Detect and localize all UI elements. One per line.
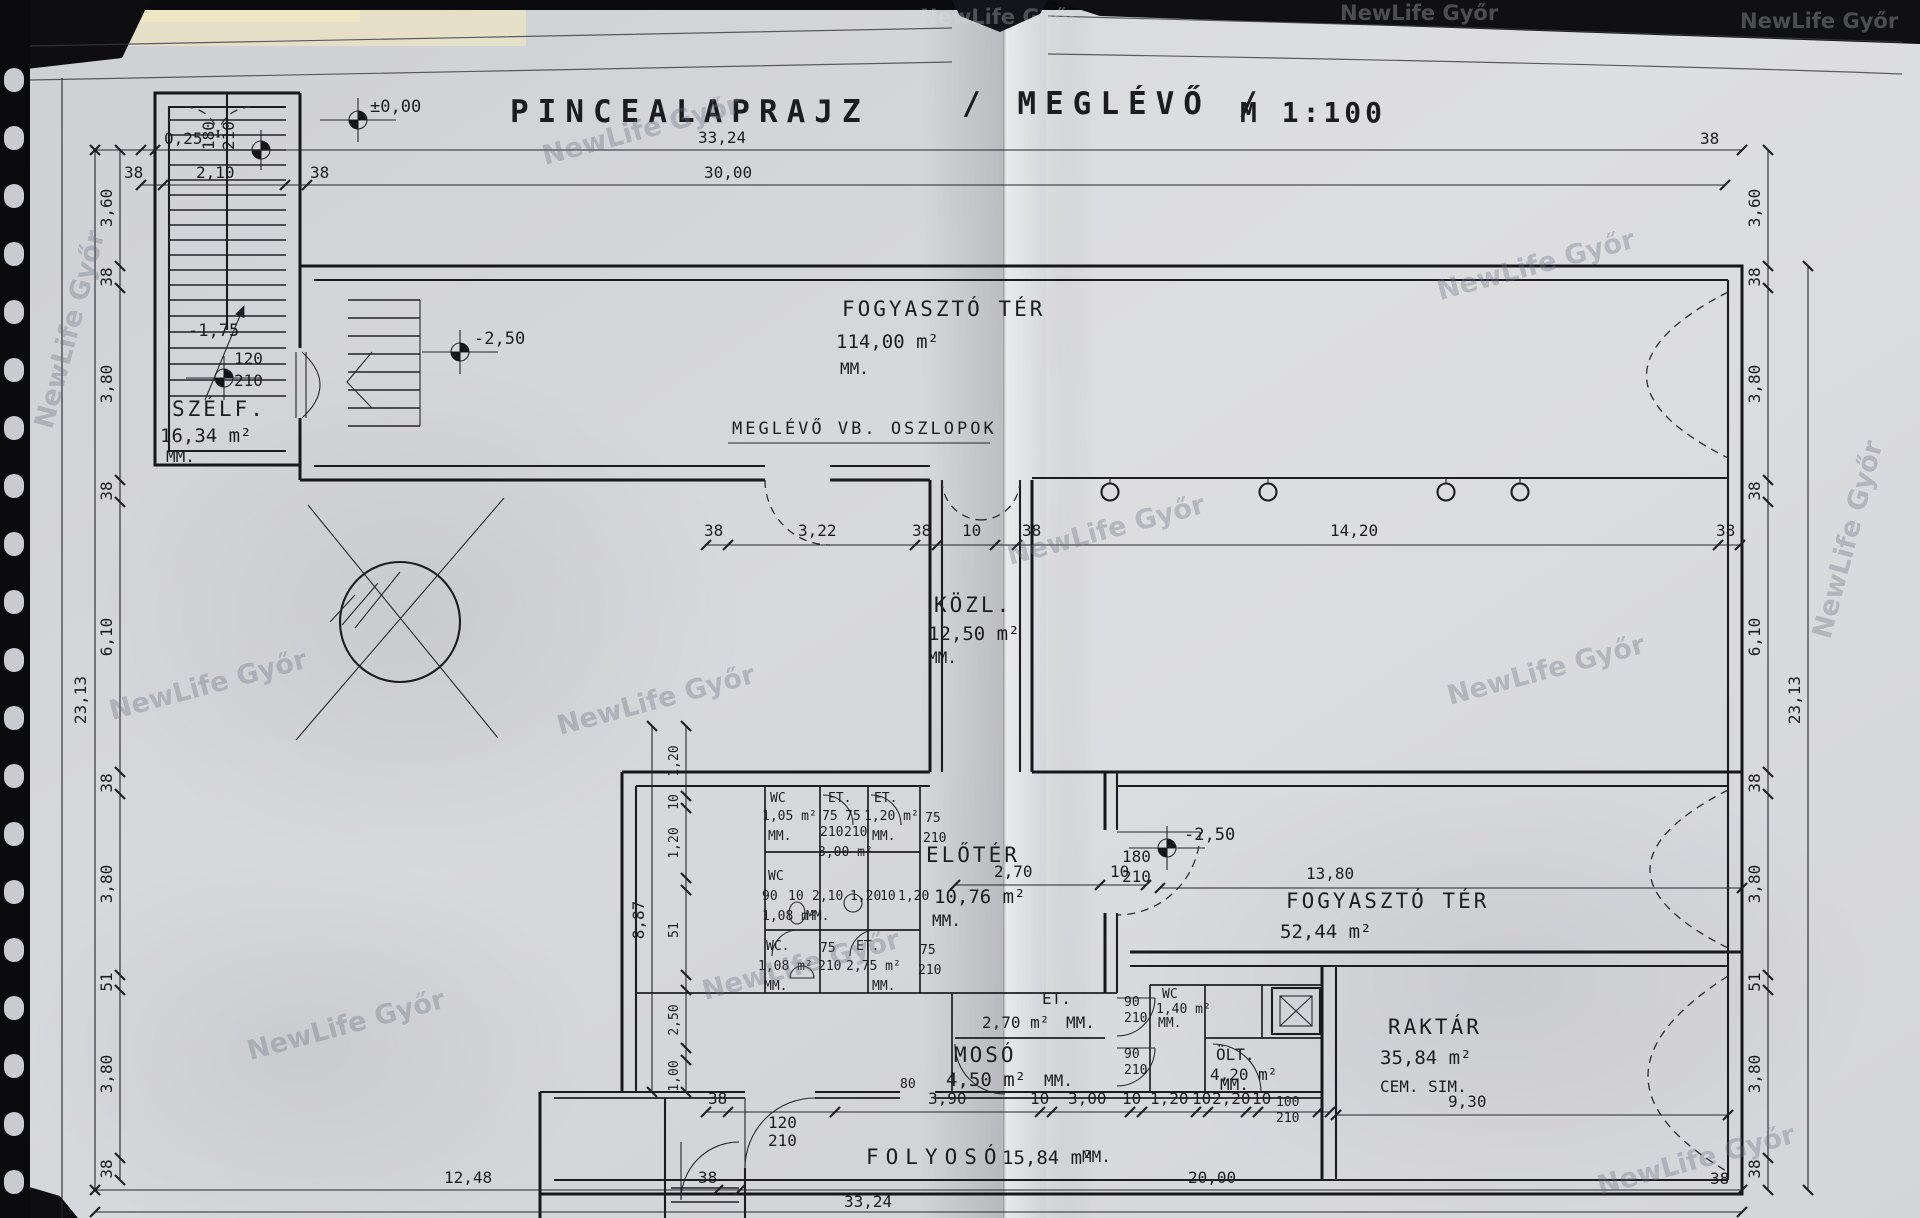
door-width: 75 xyxy=(920,943,936,958)
dim-label: 38 xyxy=(912,521,931,540)
dim-label: 23,13 xyxy=(71,676,90,724)
dim-label: 38 xyxy=(698,1168,717,1187)
door-width: 90 xyxy=(1124,1047,1140,1062)
room-area: 1,05 m² xyxy=(762,809,817,824)
watermark-text: NewLife Győr xyxy=(920,5,1079,29)
room-note: MM. xyxy=(768,829,791,844)
door-height: 210 xyxy=(1122,867,1151,886)
room-area: 4,50 m² xyxy=(946,1069,1026,1091)
room-name: ÖLT. xyxy=(1216,1045,1255,1064)
dim-label: 10 xyxy=(1252,1089,1271,1108)
room-note: MM. xyxy=(1066,1013,1095,1032)
room-name: ET. xyxy=(1042,989,1071,1008)
dim-label: 10 xyxy=(667,794,682,810)
dim-label: 1,20 xyxy=(898,889,929,904)
door-width: 75 xyxy=(845,809,861,824)
door-width: 100 xyxy=(1276,1095,1299,1110)
dim-label: 6,10 xyxy=(97,618,116,657)
columns-note-text: MEGLÉVŐ VB. OSZLOPOK xyxy=(732,417,997,439)
dim-label: 10 xyxy=(962,521,981,540)
dim-label: 2,70 xyxy=(994,862,1033,881)
door-width: 75 xyxy=(925,811,941,826)
room-area: 15,84 m² xyxy=(1002,1147,1094,1169)
door-width: 120 xyxy=(768,1113,797,1132)
room-note: MM. xyxy=(166,447,195,466)
dim-label: 10 xyxy=(1030,1089,1049,1108)
room-area: 16,34 m² xyxy=(160,425,252,447)
dim-label: 90 xyxy=(762,889,778,904)
room-note: MM. xyxy=(1158,1016,1181,1031)
dim-label: 3,60 xyxy=(97,189,116,228)
dim-label: 8,87 xyxy=(629,901,648,940)
room-name: WC xyxy=(1162,987,1178,1002)
room-area: 3,00 m² xyxy=(818,845,873,860)
door-height: 210 xyxy=(234,371,263,390)
dim-label: 12,48 xyxy=(444,1168,492,1187)
door-height: 210 xyxy=(844,825,867,840)
room-note: MM. xyxy=(932,911,961,930)
room-note: MM. xyxy=(1082,1147,1111,1166)
room-area: 10,76 m² xyxy=(934,886,1026,908)
dim-label: 3,90 xyxy=(928,1089,967,1108)
level-label: -2,50 xyxy=(1184,825,1235,845)
dim-label: 38 xyxy=(1745,481,1764,500)
room-area: 12,50 m² xyxy=(928,623,1020,645)
room-name: WC xyxy=(768,869,784,884)
room-name: WC. xyxy=(766,939,789,954)
room-area: 1,20 m² xyxy=(864,809,919,824)
dim-label: 3,00 xyxy=(1068,1089,1107,1108)
dim-label: 51 xyxy=(97,972,116,991)
dim-label: 3,80 xyxy=(97,1055,116,1094)
dim-label: 3,80 xyxy=(97,865,116,904)
dim-label: 23,13 xyxy=(1785,676,1804,724)
dim-label: 10 xyxy=(1192,1089,1211,1108)
door-height: 210 xyxy=(1124,1011,1147,1026)
dim-label: 51 xyxy=(667,922,682,938)
dim-label: 38 xyxy=(708,1089,727,1108)
room-name: MOSÓ xyxy=(954,1042,1017,1067)
dim-label: 38 xyxy=(1700,129,1719,148)
door-height: 210 xyxy=(918,963,941,978)
dim-label: 10 xyxy=(880,889,896,904)
dim-label: 3,60 xyxy=(1745,189,1764,228)
room-note: MM. xyxy=(928,648,957,667)
door-width: 75 xyxy=(822,809,838,824)
room-area: 52,44 m² xyxy=(1280,921,1372,943)
watermark-text: NewLife Győr xyxy=(1340,1,1499,25)
scanned-floorplan-page: PINCEALAPRAJZ / MEGLÉVŐ / M 1:100 FOGYAS… xyxy=(0,0,1920,1218)
dim-label: 2,10 xyxy=(196,163,235,182)
dim-label: 51 xyxy=(1745,972,1764,991)
dim-label: 1,20 xyxy=(667,745,682,776)
room-note: MM. xyxy=(840,359,869,378)
room-name: FOGYASZTÓ TÉR xyxy=(842,296,1045,321)
dim-label: 33,24 xyxy=(844,1192,892,1211)
room-name: WC xyxy=(770,791,786,806)
door-height: 210 xyxy=(1276,1111,1299,1126)
dim-label: 3,80 xyxy=(1745,365,1764,404)
door-height: 210 xyxy=(1124,1063,1147,1078)
room-name: FOLYOSÓ xyxy=(866,1144,1004,1169)
dim-label: 3,22 xyxy=(798,521,837,540)
dim-label: 1,20 xyxy=(850,889,881,904)
dim-label: 38 xyxy=(1745,267,1764,286)
dim-label: 0,25 xyxy=(164,129,203,148)
door-width: 180 xyxy=(199,121,218,150)
room-name: SZÉLF. xyxy=(172,396,266,421)
door-height: 210 xyxy=(219,121,238,150)
dim-label: 6,10 xyxy=(1745,618,1764,657)
dim-label: 20,00 xyxy=(1188,1168,1236,1187)
door-height: 210 xyxy=(923,831,946,846)
room-note: MM. xyxy=(872,829,895,844)
dim-label: 38 xyxy=(704,521,723,540)
dim-label: 13,80 xyxy=(1306,864,1354,883)
room-note: MM. xyxy=(1044,1071,1073,1090)
dim-label: 3,80 xyxy=(1745,1055,1764,1094)
dim-label: 10 xyxy=(788,889,804,904)
dim-label: 38 xyxy=(124,163,143,182)
dim-label: 38 xyxy=(97,1159,116,1178)
door-width: 120 xyxy=(234,349,263,368)
dim-label: 33,24 xyxy=(698,128,746,147)
dim-label: 1,20 xyxy=(1150,1089,1189,1108)
watermark-text: NewLife Győr xyxy=(1740,9,1899,33)
room-name: KÖZL. xyxy=(934,592,1012,617)
room-name: RAKTÁR xyxy=(1388,1014,1482,1039)
dim-label: 30,00 xyxy=(704,163,752,182)
door-height: 210 xyxy=(820,825,843,840)
dim-label: 38 xyxy=(1716,521,1735,540)
room-note: MM. xyxy=(806,909,829,924)
room-area: 2,70 m² xyxy=(982,1013,1049,1032)
title-variant: / MEGLÉVŐ / xyxy=(962,85,1266,122)
door-width: 180 xyxy=(1122,847,1151,866)
drawing-scale: M 1:100 xyxy=(1240,96,1386,129)
level-label: -1,75 xyxy=(188,321,239,341)
level-label: -2,50 xyxy=(474,329,525,349)
spiral-binding xyxy=(0,0,30,1218)
room-name: ET. xyxy=(828,791,851,806)
room-note: MM. xyxy=(872,979,895,994)
dim-label: 2,20 xyxy=(1212,1089,1251,1108)
room-area: 114,00 m² xyxy=(836,331,939,353)
door-width: 90 xyxy=(1124,995,1140,1010)
dim-label: 14,20 xyxy=(1330,521,1378,540)
dim-label: 3,80 xyxy=(97,365,116,404)
dim-label: 38 xyxy=(310,163,329,182)
room-name: ET. xyxy=(874,791,897,806)
dim-label: 9,30 xyxy=(1448,1092,1487,1111)
level-label: ±0,00 xyxy=(370,97,421,117)
dim-label: 2,50 xyxy=(667,1004,682,1035)
dim-label: 10 xyxy=(1122,1089,1141,1108)
dim-label: 38 xyxy=(1745,773,1764,792)
room-area: 35,84 m² xyxy=(1380,1047,1472,1069)
door-height: 210 xyxy=(768,1131,797,1150)
room-area: 1,40 m² xyxy=(1156,1002,1211,1017)
dim-label: 38 xyxy=(97,481,116,500)
floorplan-drawing: PINCEALAPRAJZ / MEGLÉVŐ / M 1:100 FOGYAS… xyxy=(0,0,1920,1218)
dim-label: 3,80 xyxy=(1745,865,1764,904)
door-width: 80 xyxy=(900,1077,916,1092)
dim-label: 1,00 xyxy=(667,1060,682,1091)
dim-label: 2,10 xyxy=(812,889,843,904)
room-name: FOGYASZTÓ TÉR xyxy=(1286,888,1489,913)
dim-label: 1,20 xyxy=(667,827,682,858)
dim-label: 38 xyxy=(97,773,116,792)
